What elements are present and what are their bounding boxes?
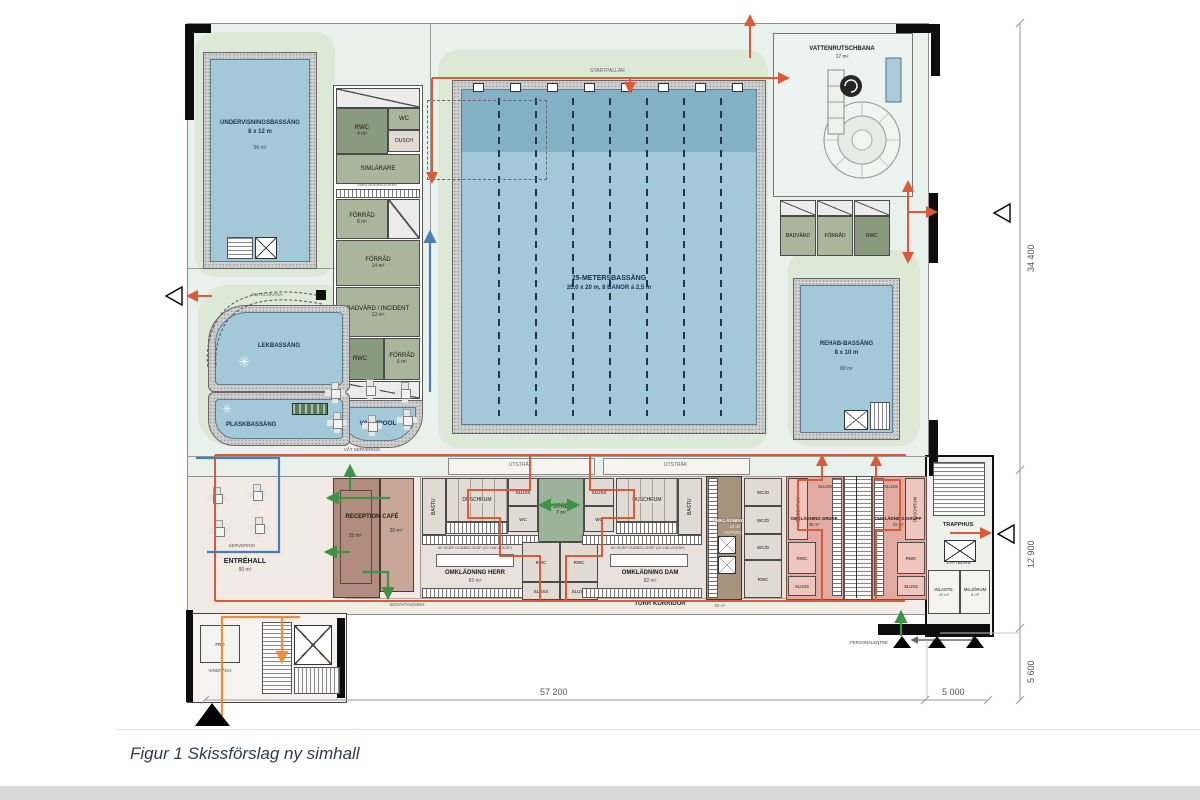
table-icon xyxy=(395,383,415,403)
lockers-row xyxy=(336,189,420,198)
main-pool-spec: 25,0 x 20 m, 8 BANOR á 2,5 m xyxy=(462,285,756,292)
room-duschrum: DUSCHRUM xyxy=(905,478,925,540)
room-label: SLUSS xyxy=(516,490,531,495)
room-area: 4 m² xyxy=(357,131,367,137)
room-badvard: BADVÄRD xyxy=(780,216,816,256)
room-duschrum: DUSCHRUM xyxy=(616,478,678,522)
vindfang-label: VINDFÅNG xyxy=(194,668,246,673)
page-edge-line xyxy=(115,729,1200,730)
room-label: SIMLÄRARE xyxy=(361,166,396,172)
teaching-pool-size: 8 x 12 m xyxy=(211,129,309,136)
table-icon xyxy=(397,410,417,430)
room-wc: WC xyxy=(388,108,420,130)
trapphus-label: TRAPPHUS xyxy=(930,522,986,529)
start-block xyxy=(732,83,743,92)
lyftbord-icon xyxy=(944,540,976,562)
main-pool-title: 25-METERSBASSÄNG xyxy=(462,275,756,283)
omkl-dam-title: OMKLÄDNING DAM xyxy=(600,570,700,577)
room-duschrum: DUSCHRUM xyxy=(446,478,508,522)
table-icon xyxy=(327,413,347,433)
table-icon xyxy=(360,380,380,400)
room-area: 13 m² xyxy=(372,312,385,318)
room-label: SLUSS xyxy=(904,584,918,589)
room-area: 7 m² xyxy=(556,510,566,516)
stairs-to-upper-floor xyxy=(844,476,872,600)
room-label: WC xyxy=(399,116,409,122)
cafe-area: 20 m² xyxy=(379,528,413,534)
start-block xyxy=(547,83,558,92)
herr-lockers-note: 60 SKÅP DUBBELSKÅP (20 HALVSKÅP) xyxy=(425,546,525,551)
mini-slide-icon xyxy=(292,403,328,415)
cafe-block xyxy=(380,478,414,592)
room-miljorum: MILJÖRUM 8 m² xyxy=(960,570,990,614)
ramp-hatch xyxy=(780,200,816,216)
room-label: BASTU xyxy=(431,498,437,515)
pool-stairs-icon xyxy=(870,402,890,430)
water-slide-title: VATTENRUTSCHBANA xyxy=(783,46,901,53)
utstrak-label-left: UTSTRÅK xyxy=(448,462,593,468)
omkl-dam-area: 82 m² xyxy=(600,578,700,584)
start-blocks-note: STARTPALLAR xyxy=(560,68,655,74)
teaching-pool-area: 96 m² xyxy=(211,145,309,151)
room-label: RWC xyxy=(353,356,367,362)
table-icon xyxy=(209,521,229,541)
room-rwc: RWC xyxy=(788,542,816,574)
room-label: DUSCHRUM xyxy=(630,497,663,503)
room-wc: WC xyxy=(508,506,538,532)
table-icon xyxy=(325,383,345,403)
start-block xyxy=(658,83,669,92)
reception-area: 35 m² xyxy=(338,533,372,539)
play-pool-water: LEKBASSÄNG ✳ xyxy=(215,312,343,385)
lyftbord-label: LYFTBORD xyxy=(933,560,985,565)
table-icon xyxy=(207,488,227,508)
lockers-row xyxy=(582,535,702,545)
room-label: SLUSS xyxy=(795,584,809,589)
table-icon xyxy=(247,485,267,505)
lane-line xyxy=(646,98,648,416)
wall-accent xyxy=(931,24,940,76)
room-label: BASTU xyxy=(687,498,693,515)
room-label: WC xyxy=(595,517,603,522)
room-rwc: RWC xyxy=(560,542,598,582)
utstrak-label-right: UTSTRÅK xyxy=(603,462,748,468)
play-pool-title: LEKBASSÄNG xyxy=(216,343,342,350)
room-bastu: BASTU xyxy=(678,478,702,535)
torr-korridor-area: 50 m² xyxy=(705,603,735,608)
entre-hall-area: 90 m² xyxy=(205,567,285,573)
stair-divider xyxy=(856,476,857,598)
omkl-grupp1-title: OMKLÄDNING GRUPP xyxy=(782,516,846,521)
start-block xyxy=(584,83,595,92)
dim-width-annex: 5 000 xyxy=(942,687,965,697)
elevator-icon xyxy=(294,625,332,665)
splash-pool-water: PLASKBASSÄNG ✳ xyxy=(215,399,343,439)
room-label: SLUSS xyxy=(534,589,549,594)
room-sluss: SLUSS xyxy=(508,478,538,506)
play-pool: LEKBASSÄNG ✳ xyxy=(208,305,350,392)
table-icon xyxy=(362,416,382,436)
room-forrad: FÖRRÅD 14 m² xyxy=(336,240,420,286)
room-area: 6 m² xyxy=(397,359,407,365)
ramp-hatch xyxy=(388,199,420,239)
rehab-pool: REHAB-BASSÄNG 8 x 10 m 80 m² xyxy=(793,278,900,440)
room-sluss: SLUSS xyxy=(522,582,560,600)
wall-accent xyxy=(185,24,194,120)
room-area: 20 m² xyxy=(939,592,949,597)
room-simlarare: SIMLÄRARE xyxy=(336,154,420,184)
room-sluss: SLUSS xyxy=(788,576,816,596)
personalentre-label: PERSONALENTRÉ xyxy=(820,640,888,645)
water-slide-area: 17 m² xyxy=(783,54,901,60)
room-label: WC/D xyxy=(757,490,769,495)
shower-cubicles xyxy=(616,522,678,534)
room-area: 14 m² xyxy=(372,263,385,269)
lockers-row xyxy=(582,588,702,598)
rehab-pool-water: REHAB-BASSÄNG 8 x 10 m 80 m² xyxy=(800,285,893,433)
pool-lift-icon xyxy=(844,410,868,430)
room-rwc: RWC 4 m² xyxy=(336,108,388,154)
room-stad: STÄD 7 m² xyxy=(538,478,584,542)
wall-line xyxy=(187,456,927,457)
dim-width-main: 57 200 xyxy=(540,687,568,697)
room-label: DUSCHRUM xyxy=(460,497,493,503)
rehab-pool-size: 8 x 10 m xyxy=(801,350,892,357)
omkl-grupp1-area: 36 m² xyxy=(782,522,846,527)
room-sluss-label: SLUSS xyxy=(876,484,906,489)
ramp-hatch xyxy=(854,200,890,216)
omkl-grupp2-title: OMKLÄDNING GRUPP xyxy=(866,516,930,521)
pool-stairs-icon xyxy=(227,237,253,259)
room-sluss: SLUSS xyxy=(584,478,614,506)
omkl-herr-title: OMKLÄDNING HERR xyxy=(425,570,525,577)
room-label: RWC xyxy=(866,233,878,239)
room-rwc: RWC xyxy=(854,216,890,256)
room-rwc: RWC xyxy=(522,542,560,582)
room-label: SLUSS xyxy=(592,490,607,495)
room-label: FÖRRÅD xyxy=(824,233,845,239)
room-rwc: RWC xyxy=(744,560,782,598)
room-label: RWC xyxy=(574,560,585,565)
lift-icon xyxy=(718,536,736,554)
water-feature-icon: ✳ xyxy=(238,353,251,371)
rehab-pool-area: 80 m² xyxy=(801,366,892,372)
room-forrad: FÖRRÅD 6 m² xyxy=(384,338,420,380)
wet-serving-label: VÅT SERVERING xyxy=(330,447,394,452)
omkl-grupp2-area: 32 m² xyxy=(866,522,930,527)
room-frd: FRD xyxy=(200,625,240,663)
room-label: FRD xyxy=(215,642,224,647)
room-forrad: FÖRRÅD xyxy=(817,216,853,256)
start-block xyxy=(510,83,521,92)
water-feature-icon: ✳ xyxy=(222,402,232,416)
start-block xyxy=(621,83,632,92)
room-area: 8 m² xyxy=(357,219,367,225)
ramp-hatch xyxy=(817,200,853,216)
servering-label: SERVERING xyxy=(212,543,272,548)
wall-accent xyxy=(878,624,990,635)
room-sluss: SLUSS xyxy=(897,576,925,596)
room-label: WC/D xyxy=(757,545,769,550)
room-label: RWC xyxy=(758,577,769,582)
annex-stairs-lower xyxy=(294,667,340,694)
lockers-column xyxy=(832,478,842,596)
table-icon xyxy=(249,518,269,538)
room-duschrum: DUSCHRUM xyxy=(788,478,808,540)
teaching-pool-water: UNDERVISNINGSBASSÄNG 8 x 12 m 96 m² xyxy=(210,59,310,262)
dim-height-hall: 34 400 xyxy=(1026,244,1036,272)
teaching-pool-title: UNDERVISNINGSBASSÄNG xyxy=(211,120,309,127)
reception-cafe-title: RECEPTION CAFÉ xyxy=(330,514,414,521)
document-page: UTSTRÅK UTSTRÅK UNDERVISNINGSBASSÄNG 8 x… xyxy=(0,0,1200,800)
slide-label: RUTSCHKANA xyxy=(232,292,302,297)
room-wcd: WC/D xyxy=(744,534,782,560)
bench xyxy=(436,554,514,567)
room-wcd: WC/D xyxy=(744,478,782,506)
dam-lockers-note: 60 SKÅP DUBBELSKÅP (20 HALVSKÅP) xyxy=(598,546,698,551)
dim-height-entry: 12 900 xyxy=(1026,540,1036,568)
lockers-note: OMKLÄDNINGSSKÅP xyxy=(336,183,418,188)
room-inlastning: INLASTN. 20 m² xyxy=(928,570,960,614)
room-label: DUSCH xyxy=(395,138,413,144)
room-label: RWC xyxy=(906,556,917,561)
room-label: WC xyxy=(519,517,527,522)
start-block xyxy=(695,83,706,92)
omkl-herr-area: 82 m² xyxy=(425,578,525,584)
room-label: RWC xyxy=(797,556,808,561)
room-wc: WC xyxy=(584,506,614,532)
room-dusch: DUSCH xyxy=(388,130,420,152)
room-label: WC/D xyxy=(757,518,769,523)
room-area: 8 m² xyxy=(971,592,979,597)
teaching-pool: UNDERVISNINGSBASSÄNG 8 x 12 m 96 m² xyxy=(203,52,317,269)
rehab-pool-title: REHAB-BASSÄNG xyxy=(801,341,892,348)
pool-lift-icon xyxy=(255,237,277,259)
bottom-gray-strip xyxy=(0,786,1200,800)
figure-caption: Figur 1 Skissförslag ny simhall xyxy=(130,744,360,764)
room-label: RWC xyxy=(536,560,547,565)
room-bastu: BASTU xyxy=(422,478,446,535)
skoavtagning-label: SKOAVTAGNING xyxy=(372,602,442,607)
shower-cubicles xyxy=(446,522,508,534)
bench xyxy=(610,554,688,567)
start-block xyxy=(473,83,484,92)
wall-accent xyxy=(186,610,193,702)
lane-line xyxy=(720,98,722,416)
ramp-hatch xyxy=(336,88,420,108)
lane-line xyxy=(572,98,574,416)
lane-line xyxy=(609,98,611,416)
entre-hall-title: ENTRÉHALL xyxy=(205,558,285,566)
room-wcd: WC/D xyxy=(744,506,782,534)
wall-accent xyxy=(929,193,938,263)
dim-height-annex: 5 600 xyxy=(1026,660,1036,683)
annex-stairs xyxy=(262,622,292,694)
lift-icon xyxy=(718,556,736,574)
room-forrad: FÖRRÅD 8 m² xyxy=(336,199,388,239)
trapphus-stairs xyxy=(933,462,985,516)
lockers-column xyxy=(708,478,718,598)
lane-line xyxy=(683,98,685,416)
room-label: BADVÄRD xyxy=(786,233,810,239)
lockers-column xyxy=(874,478,884,596)
platform-zone-dashed xyxy=(427,100,547,180)
room-rwc: RWC xyxy=(897,542,925,574)
torr-korridor-title: TORR KORRIDOR xyxy=(615,601,705,608)
